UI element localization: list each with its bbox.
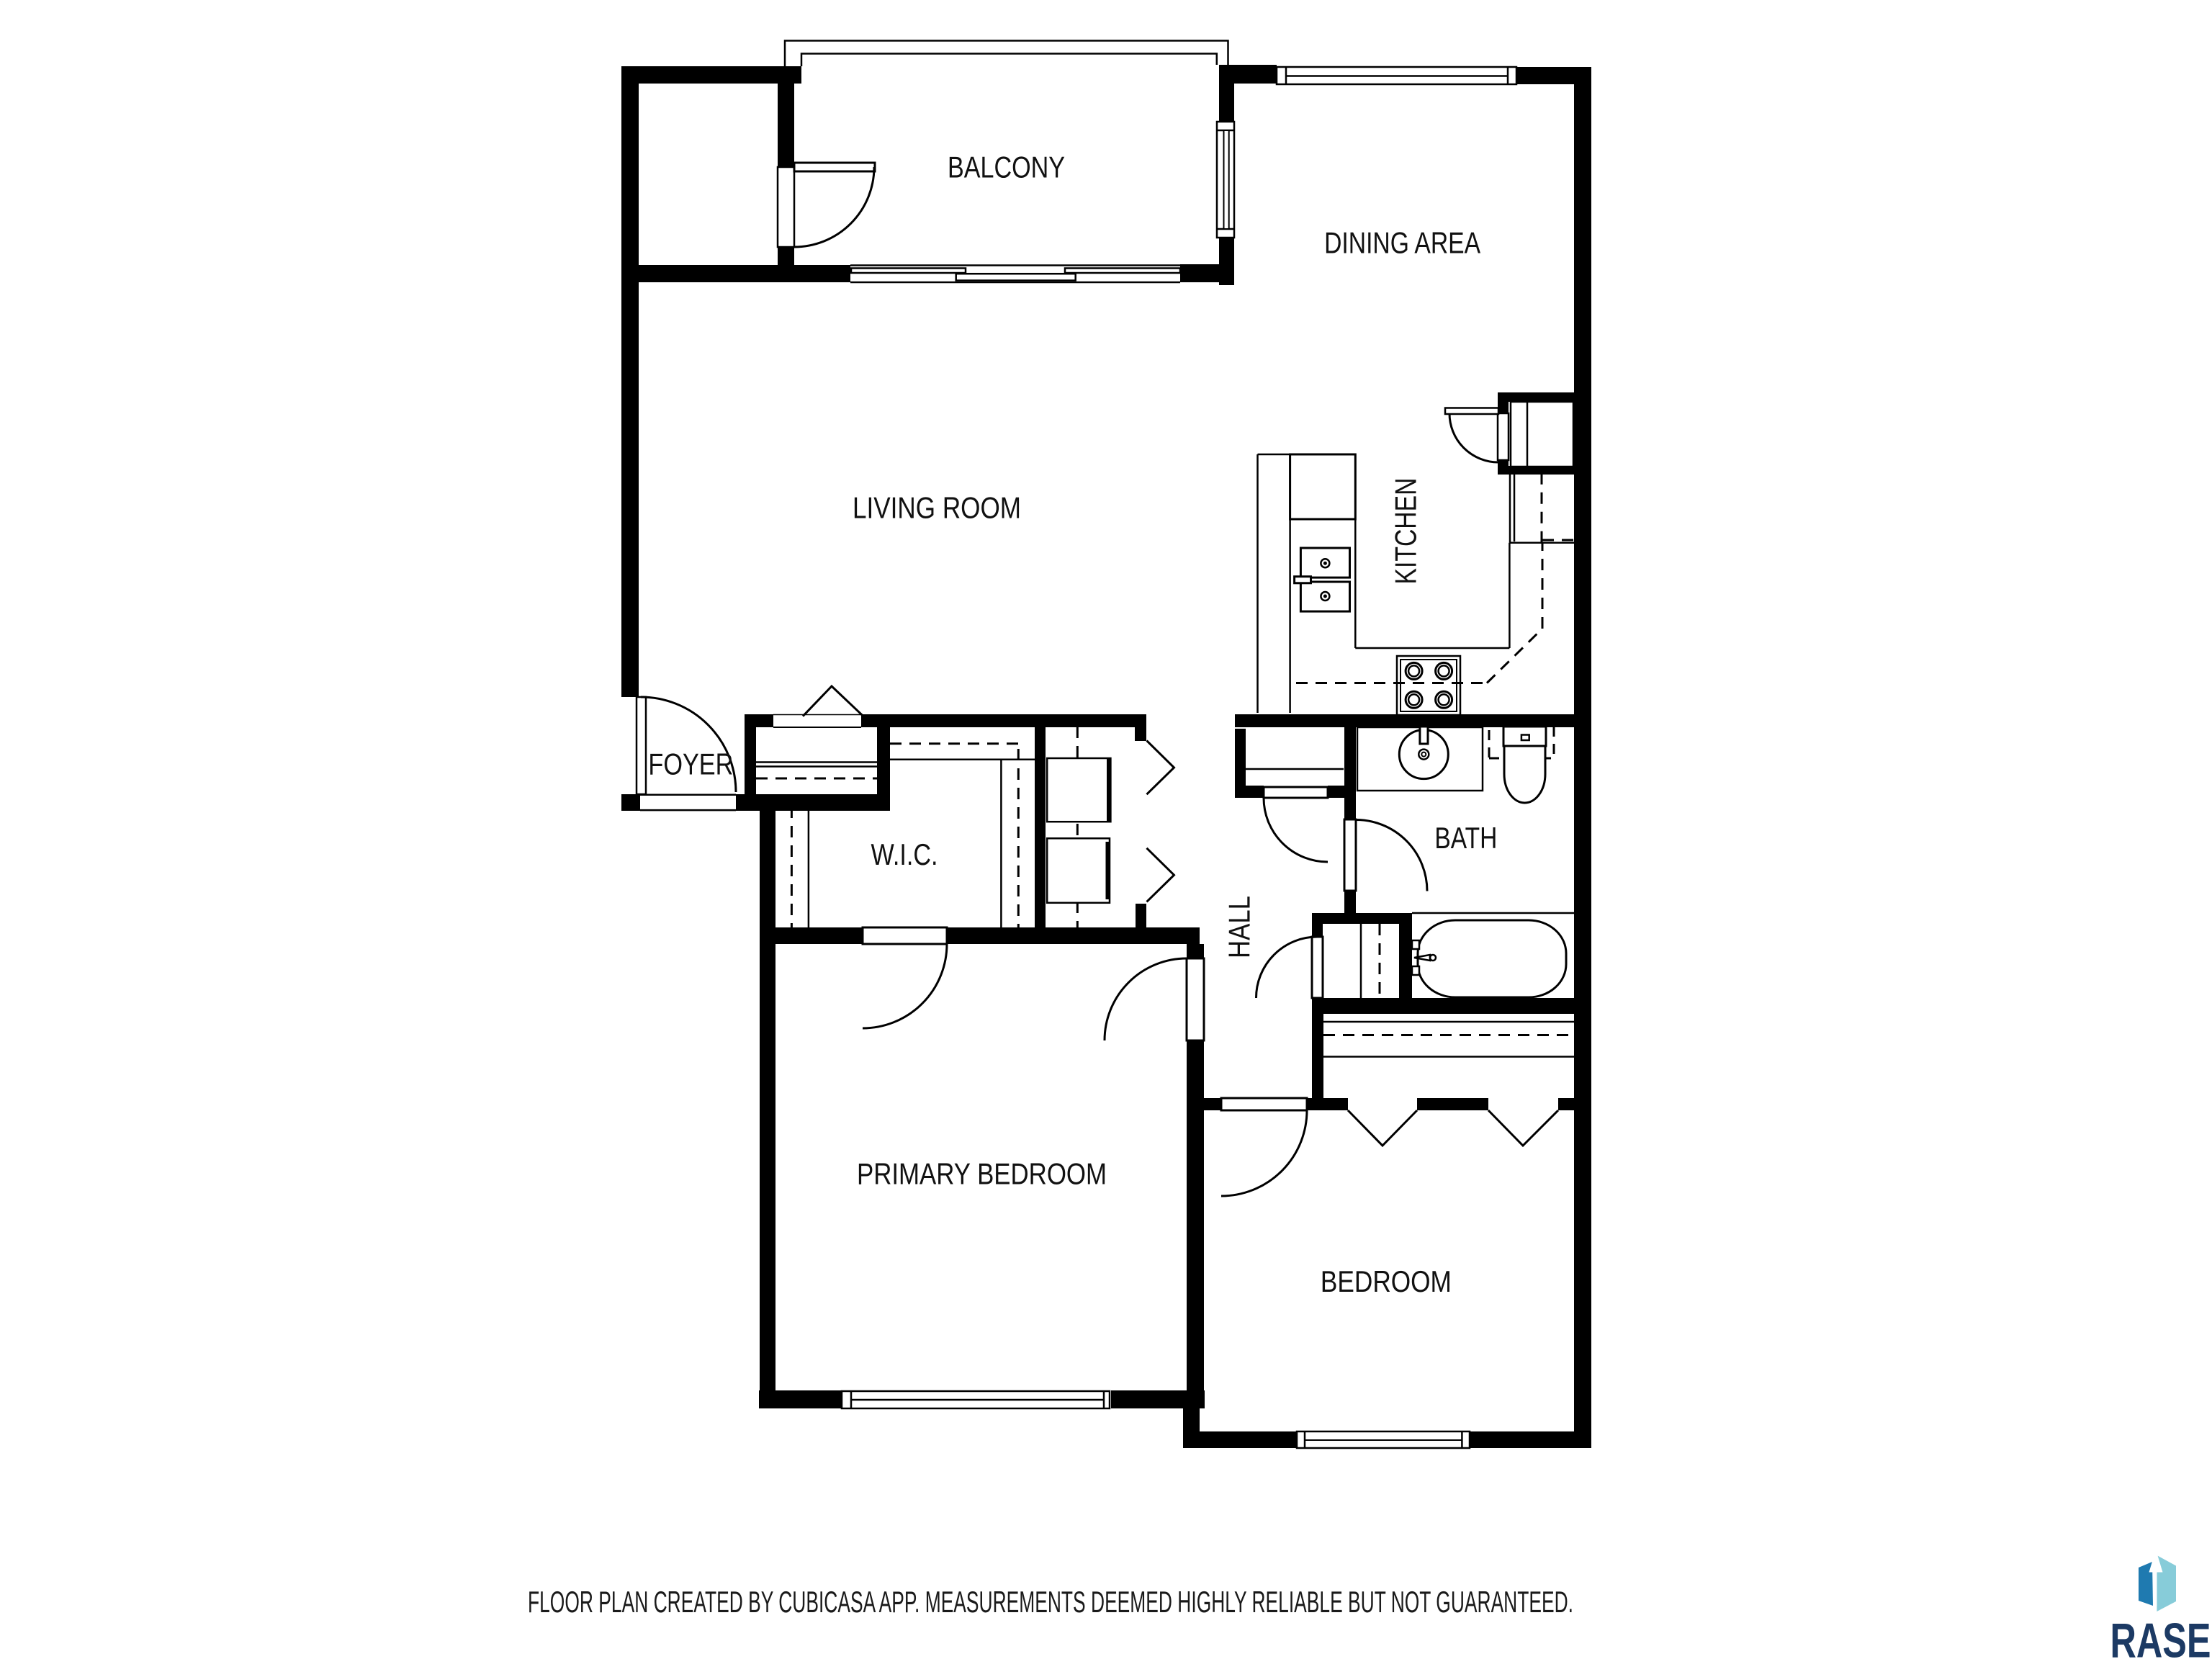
svg-text:BATH: BATH	[1434, 821, 1497, 855]
svg-text:DINING AREA: DINING AREA	[1324, 225, 1480, 259]
svg-text:BEDROOM: BEDROOM	[1321, 1264, 1452, 1298]
svg-text:LIVING ROOM: LIVING ROOM	[853, 490, 1021, 524]
svg-text:RASE: RASE	[2110, 1613, 2211, 1659]
svg-text:PRIMARY BEDROOM: PRIMARY BEDROOM	[857, 1156, 1107, 1190]
svg-text:W.I.C.: W.I.C.	[871, 837, 938, 871]
svg-text:KITCHEN: KITCHEN	[1388, 478, 1422, 585]
svg-text:HALL: HALL	[1222, 896, 1256, 958]
svg-text:BALCONY: BALCONY	[948, 150, 1065, 184]
svg-text:FOYER: FOYER	[648, 747, 733, 781]
svg-text:FLOOR PLAN CREATED BY CUBICASA: FLOOR PLAN CREATED BY CUBICASA APP. MEAS…	[528, 1585, 1573, 1619]
